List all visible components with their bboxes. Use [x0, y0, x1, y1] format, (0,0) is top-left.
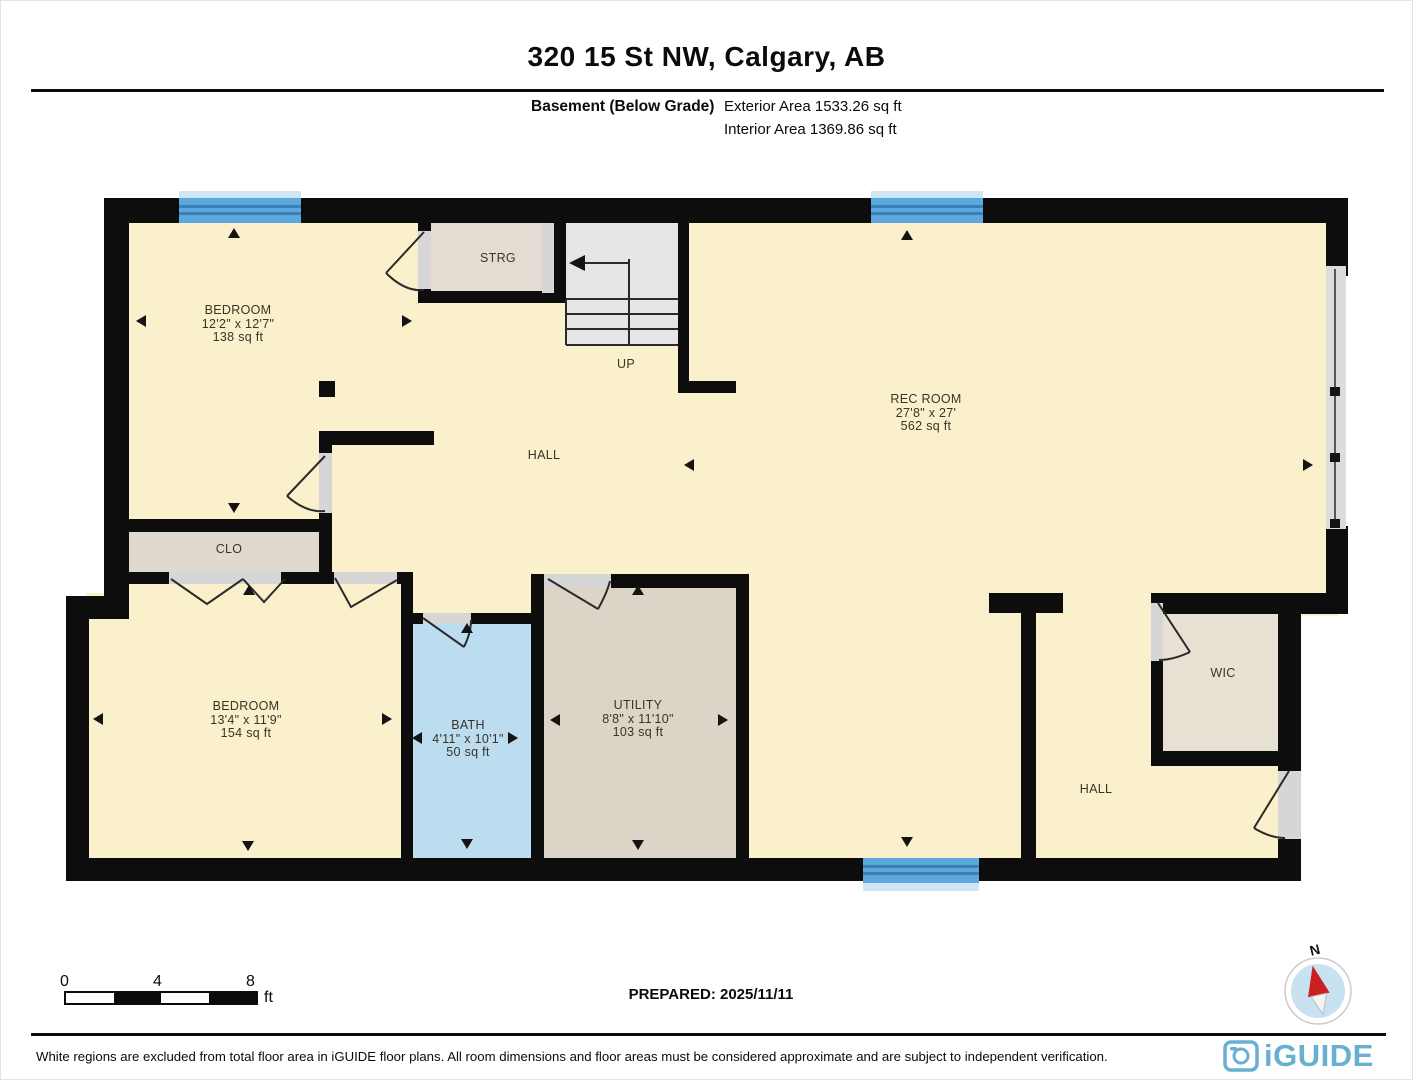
- stairs-up-label: UP: [601, 358, 651, 372]
- wall-stairs-right: [678, 223, 689, 393]
- window-rec-room: [871, 198, 983, 223]
- dimension-arrow: [243, 585, 255, 595]
- stairs-label: UP: [601, 358, 651, 372]
- room-label-hall-right: HALL: [1046, 783, 1146, 797]
- room-label-bedroom-upper: BEDROOM 12'2" x 12'7" 138 sq ft: [158, 304, 318, 345]
- dimension-arrow: [550, 714, 560, 726]
- room-label-bedroom-lower: BEDROOM 13'4" x 11'9" 154 sq ft: [166, 700, 326, 741]
- dimension-arrow: [382, 713, 392, 725]
- room-area: 138 sq ft: [158, 331, 318, 345]
- wall-right-lower-b: [1278, 839, 1301, 881]
- footer-divider: [31, 1033, 1386, 1036]
- wall-left-upper: [104, 198, 129, 618]
- scale-label-4: 4: [153, 973, 162, 991]
- room-label-wic: WIC: [1173, 667, 1273, 681]
- window-bottom: [863, 858, 979, 883]
- room-name: HALL: [494, 449, 594, 463]
- dimension-arrow: [508, 732, 518, 744]
- scale-unit: ft: [264, 989, 273, 1007]
- wall-wic-bottom: [1151, 751, 1301, 766]
- wall-bath-top-right: [471, 613, 531, 624]
- door-sill-utility: [544, 574, 611, 588]
- floor-plan-page: 320 15 St NW, Calgary, AB Basement (Belo…: [0, 0, 1413, 1080]
- dimension-arrow: [461, 839, 473, 849]
- room-name: CLO: [179, 543, 279, 557]
- dimension-arrow: [632, 840, 644, 850]
- scale-label-8: 8: [246, 973, 255, 991]
- dimension-arrow: [632, 585, 644, 595]
- room-dims: 8'8" x 11'10": [558, 713, 718, 727]
- wall-bedroom1-bottom-left: [129, 519, 331, 532]
- door-sill-bedroom1: [319, 453, 332, 513]
- wall-right-lower-a: [1278, 593, 1301, 771]
- wall-clo-bottom-left: [129, 572, 171, 584]
- dimension-arrow: [1303, 459, 1313, 471]
- door-sill-clo: [169, 572, 281, 584]
- brand-name: iGUIDE: [1264, 1039, 1374, 1073]
- room-label-hall: HALL: [494, 449, 594, 463]
- dimension-arrow: [242, 841, 254, 851]
- room-label-clo: CLO: [179, 543, 279, 557]
- floor-plan: BEDROOM 12'2" x 12'7" 138 sq ft STRG UP …: [1, 1, 1413, 1080]
- scale-bar: [64, 991, 258, 1005]
- dimension-arrow: [718, 714, 728, 726]
- wall-bath-top-left: [413, 613, 423, 624]
- dimension-arrow: [412, 732, 422, 744]
- disclaimer-text: White regions are excluded from total fl…: [36, 1049, 1186, 1064]
- window-halo: [179, 191, 301, 198]
- wall-wic-left-lower: [1151, 661, 1163, 756]
- door-sill-bedroom2: [334, 572, 397, 584]
- room-dims: 12'2" x 12'7": [158, 318, 318, 332]
- dimension-arrow: [136, 315, 146, 327]
- door-sill-strg: [418, 231, 431, 289]
- wall-left-lower: [66, 596, 89, 881]
- dimension-arrow: [684, 459, 694, 471]
- room-name: UTILITY: [558, 699, 718, 713]
- wall-wic-top: [1151, 593, 1278, 614]
- scale-label-0: 0: [60, 973, 69, 991]
- wall-clo-bottom-mid: [281, 572, 334, 584]
- wall-stairs-stub: [678, 381, 736, 393]
- dimension-arrow: [93, 713, 103, 725]
- room-name: WIC: [1173, 667, 1273, 681]
- room-name: BEDROOM: [166, 700, 326, 714]
- room-dims: 27'8" x 27': [846, 407, 1006, 421]
- wall-bath-right: [531, 574, 544, 858]
- compass-rose: N: [1278, 939, 1358, 1036]
- window-halo: [871, 191, 983, 198]
- room-dims: 13'4" x 11'9": [166, 714, 326, 728]
- room-name: BEDROOM: [158, 304, 318, 318]
- wall-t-stem: [1021, 613, 1036, 858]
- room-label-strg: STRG: [448, 252, 548, 266]
- room-name: STRG: [448, 252, 548, 266]
- room-label-rec-room: REC ROOM 27'8" x 27' 562 sq ft: [846, 393, 1006, 434]
- wall-post: [319, 381, 335, 397]
- room-area: 50 sq ft: [388, 746, 548, 760]
- window-halo: [863, 883, 979, 891]
- wall-bottom: [66, 858, 1301, 881]
- window-right-wall: [1326, 266, 1346, 529]
- wall-utility-right: [736, 574, 749, 858]
- wall-t-cap: [989, 593, 1063, 613]
- dimension-arrow: [228, 228, 240, 238]
- room-area: 562 sq ft: [846, 420, 1006, 434]
- wall-bedroom2-right: [401, 572, 413, 858]
- camera-icon: [1223, 1039, 1259, 1073]
- room-area: 103 sq ft: [558, 726, 718, 740]
- wall-wic-left-stub: [1151, 593, 1163, 603]
- dimension-arrow: [402, 315, 412, 327]
- dimension-arrow: [228, 503, 240, 513]
- dimension-arrow: [901, 837, 913, 847]
- dimension-arrow: [461, 623, 473, 633]
- room-name: REC ROOM: [846, 393, 1006, 407]
- room-stairs: [566, 223, 678, 346]
- wall-stairs-left: [554, 223, 566, 303]
- compass-north-label: N: [1308, 941, 1322, 959]
- room-name: HALL: [1046, 783, 1146, 797]
- room-area: 154 sq ft: [166, 727, 326, 741]
- window-bedroom1: [179, 198, 301, 223]
- room-name: BATH: [388, 719, 548, 733]
- wall-right-upper: [1326, 198, 1348, 276]
- door-sill-exterior: [1278, 771, 1301, 839]
- prepared-date: PREPARED: 2025/11/11: [561, 986, 861, 1003]
- room-label-utility: UTILITY 8'8" x 11'10" 103 sq ft: [558, 699, 718, 740]
- dimension-arrow: [901, 230, 913, 240]
- iguide-logo: iGUIDE: [1223, 1039, 1374, 1073]
- wall-bedroom1-bottom-right: [319, 431, 434, 445]
- door-sill-wic: [1151, 603, 1163, 661]
